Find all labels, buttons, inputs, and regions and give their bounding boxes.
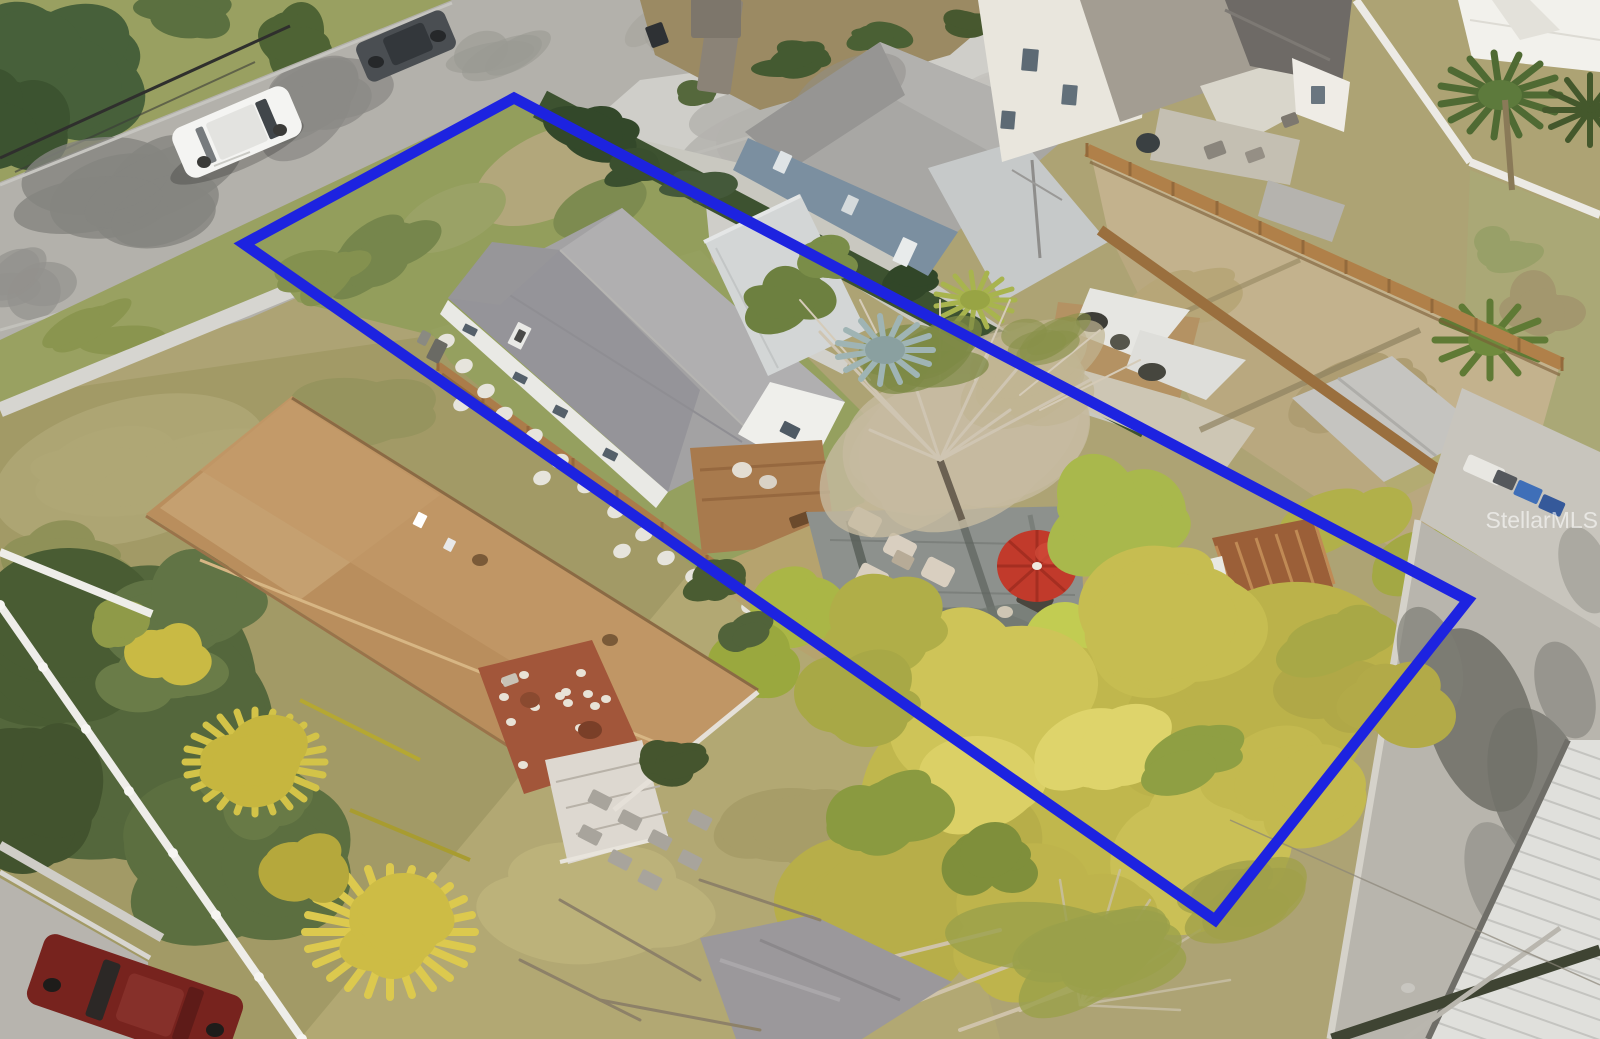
svg-text:StellarMLS: StellarMLS xyxy=(1486,507,1598,533)
